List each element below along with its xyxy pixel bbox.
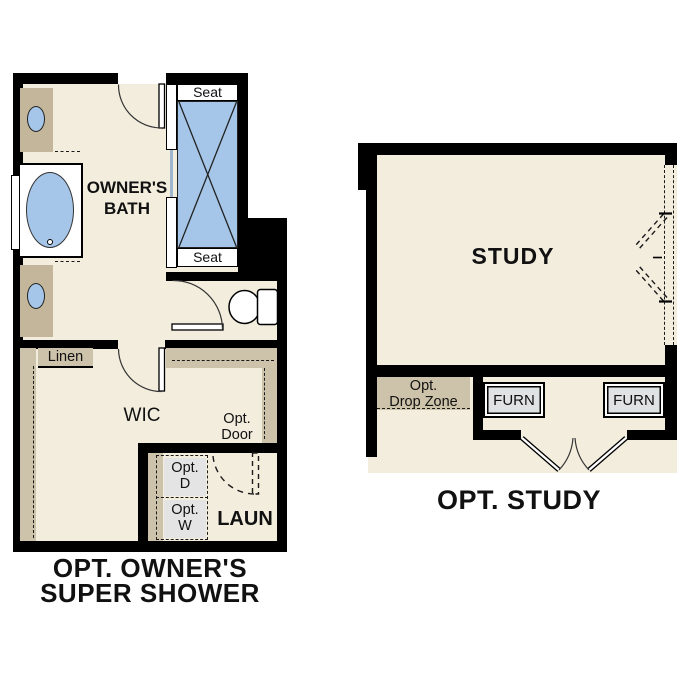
- door-swing-arc: [173, 280, 223, 329]
- double-door-leaf-inner: [522, 438, 559, 470]
- door-leaf: [172, 324, 223, 330]
- opt-door-swing-arc-dashed: [213, 456, 256, 494]
- plan-linework: [0, 0, 687, 687]
- french-door-leaf-dashed: [639, 266, 668, 298]
- opt-door-leaf-dashed: [253, 453, 259, 494]
- french-door-leaf-dashed: [639, 218, 668, 250]
- french-door-leaf-dashed: [635, 269, 664, 301]
- double-door-leaf-inner: [589, 438, 626, 470]
- toilet-tank: [258, 290, 278, 325]
- floorplan-canvas: Seat Seat Linen Opt. D Opt. W OWNER'S: [0, 0, 687, 687]
- door-leaf: [159, 348, 165, 391]
- door-swing-arc: [119, 349, 162, 392]
- door-leaf: [159, 84, 165, 128]
- toilet-bowl: [229, 291, 260, 324]
- door-swing-arc: [559, 438, 573, 470]
- french-door-leaf-dashed: [635, 214, 664, 246]
- door-swing-arc: [575, 438, 589, 470]
- door-swing-arc: [118, 85, 161, 129]
